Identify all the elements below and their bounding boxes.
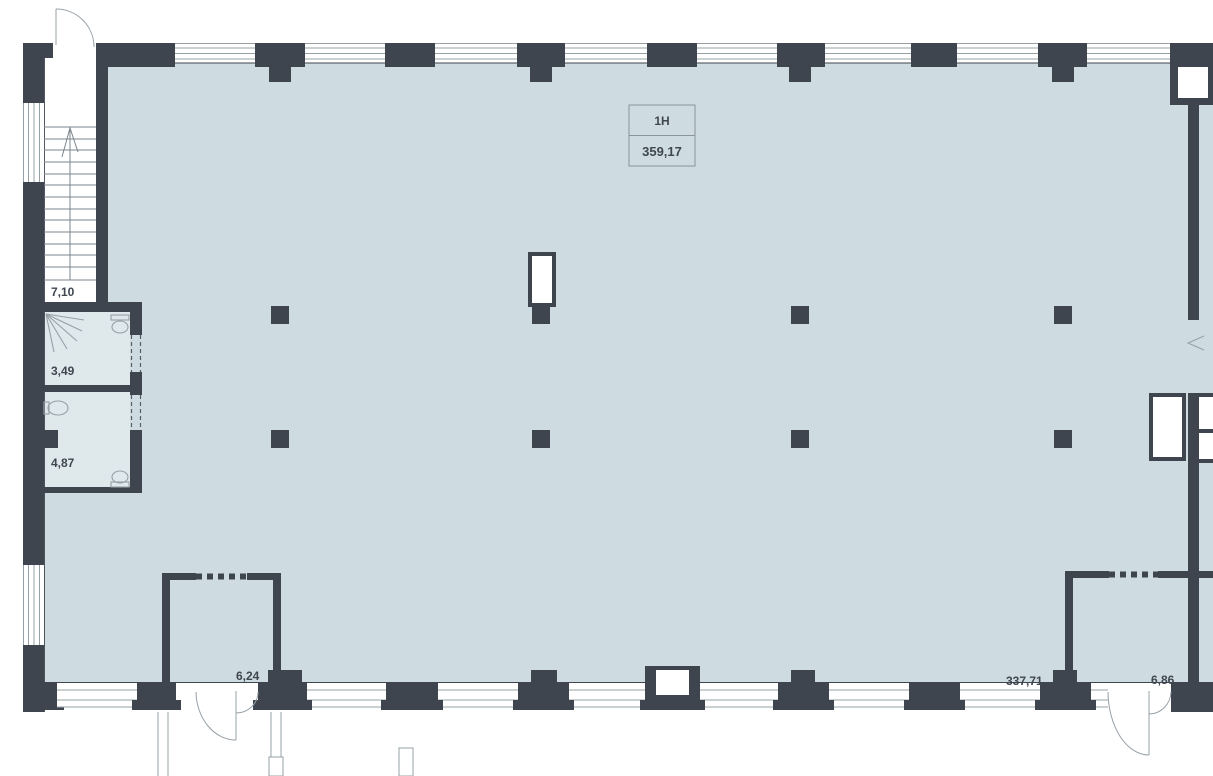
stairwell-right-wall: [96, 43, 108, 312]
column: [271, 306, 289, 324]
pier-base: [773, 700, 834, 710]
entrance-opening-left: [176, 683, 258, 708]
pier: [137, 682, 176, 700]
wc-bottom-wall: [44, 487, 142, 493]
partition-wall: [1065, 571, 1109, 578]
pier-base: [513, 700, 574, 710]
column: [791, 306, 809, 324]
column: [1054, 430, 1072, 448]
partition-wall: [162, 573, 170, 683]
pier: [778, 682, 829, 700]
corner: [1171, 682, 1213, 712]
pilaster: [44, 430, 58, 448]
unit-name: 1H: [654, 114, 669, 128]
pilaster: [530, 63, 552, 82]
top-right-shaft: [1170, 43, 1213, 105]
shaft-edge: [1199, 393, 1213, 397]
pilaster: [1052, 63, 1074, 82]
area-label-wc-bottom: 4,87: [51, 456, 75, 470]
main-hall-floor-left-strip: [44, 493, 108, 682]
partition-wall: [1158, 571, 1213, 578]
pilaster: [269, 63, 291, 82]
pier: [909, 682, 960, 700]
pier: [386, 682, 438, 700]
shaft-edge: [1199, 459, 1213, 463]
pilaster: [531, 670, 557, 684]
stair-entry-jamb: [23, 43, 53, 58]
pier-base: [132, 700, 181, 710]
pier: [258, 682, 307, 700]
pier-base: [253, 700, 312, 710]
column: [271, 430, 289, 448]
pier: [911, 43, 957, 67]
pier-base: [381, 700, 443, 710]
floor-plan-drawing: 1H 359,17 7,10 3,49 4,87 6,24 337,71 6,8…: [0, 0, 1213, 776]
partition-wall: [162, 573, 196, 580]
area-label-vestibule-left: 6,24: [236, 669, 260, 683]
column: [1054, 306, 1072, 324]
wc-divider-wall: [44, 385, 142, 392]
column: [791, 430, 809, 448]
area-label-stairwell: 7,10: [51, 285, 75, 299]
floor-plan-canvas: 1H 359,17 7,10 3,49 4,87 6,24 337,71 6,8…: [0, 0, 1213, 776]
shaft-edge: [1199, 429, 1213, 433]
shaft-void-partial: [1199, 395, 1213, 461]
shaft-void: [1151, 395, 1184, 459]
pier: [1040, 682, 1091, 700]
shaft-void: [1178, 67, 1208, 98]
partition-wall: [273, 573, 281, 683]
wall-segment: [23, 182, 44, 565]
pier-base: [904, 700, 965, 710]
pilaster: [791, 670, 815, 684]
partition-wall: [247, 573, 281, 580]
unit-area: 359,17: [642, 144, 682, 159]
pilaster: [789, 63, 811, 82]
wc-right-wall: [130, 430, 142, 493]
pier: [518, 682, 569, 700]
pier: [647, 43, 697, 67]
area-label-wc-top: 3,49: [51, 364, 75, 378]
column-shaft-void: [530, 254, 554, 305]
wall-segment: [1188, 393, 1199, 682]
pier-void: [656, 670, 689, 695]
wc-top-wall: [44, 302, 142, 312]
wc-right-wall: [130, 302, 142, 335]
pier-base: [1035, 700, 1096, 710]
area-label-vestibule-right: 6,86: [1151, 673, 1175, 687]
column: [532, 307, 550, 324]
partition-wall: [1065, 578, 1073, 683]
pier: [385, 43, 435, 67]
area-label-main-hall: 337,71: [1006, 674, 1043, 688]
wall-segment: [1188, 105, 1199, 320]
column: [532, 430, 550, 448]
